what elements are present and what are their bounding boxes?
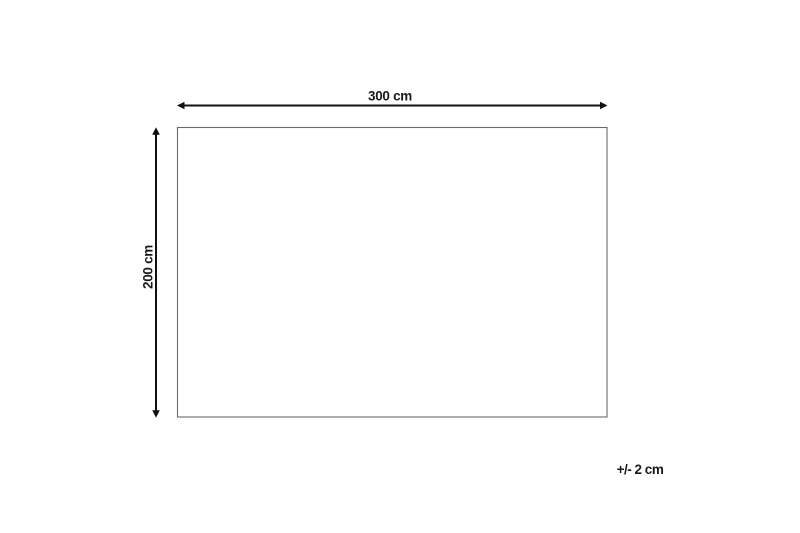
svg-text:300 cm: 300 cm bbox=[368, 89, 412, 104]
svg-text:200 cm: 200 cm bbox=[141, 245, 156, 289]
svg-text:+/- 2 cm: +/- 2 cm bbox=[617, 462, 664, 477]
